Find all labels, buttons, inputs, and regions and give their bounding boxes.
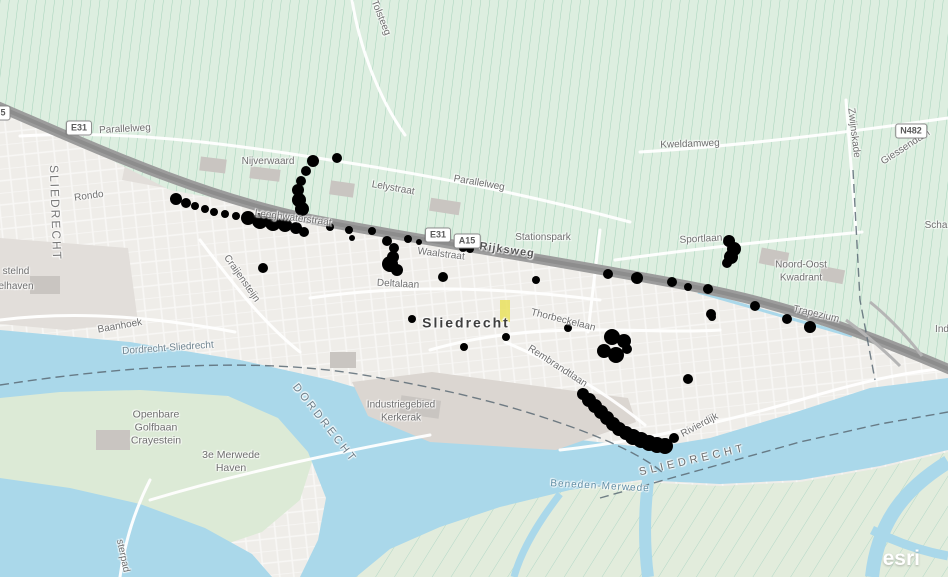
data-point[interactable] [622, 344, 632, 354]
data-point[interactable] [706, 309, 716, 319]
map-canvas[interactable]: ParallelwegTolsteegKweldamwegZwijnskadeG… [0, 0, 948, 577]
data-point[interactable] [299, 227, 309, 237]
data-point[interactable] [408, 315, 416, 323]
data-point[interactable] [326, 223, 334, 231]
data-point[interactable] [502, 333, 510, 341]
data-point[interactable] [368, 227, 376, 235]
data-point[interactable] [603, 269, 613, 279]
data-point[interactable] [301, 166, 311, 176]
esri-attribution[interactable]: esri [883, 547, 920, 571]
data-point[interactable] [608, 347, 624, 363]
data-point[interactable] [391, 264, 403, 276]
data-point[interactable] [722, 258, 732, 268]
data-point[interactable] [782, 314, 792, 324]
data-point[interactable] [667, 277, 677, 287]
data-point[interactable] [345, 226, 353, 234]
data-point[interactable] [332, 153, 342, 163]
basemap-svg [0, 0, 948, 577]
data-point[interactable] [703, 284, 713, 294]
island-creek-1 [645, 452, 652, 577]
data-point[interactable] [307, 155, 319, 167]
data-point[interactable] [210, 208, 218, 216]
data-point[interactable] [191, 202, 199, 210]
data-point[interactable] [631, 272, 643, 284]
data-point[interactable] [349, 235, 355, 241]
data-point[interactable] [466, 245, 474, 253]
data-point[interactable] [669, 433, 679, 443]
data-point[interactable] [232, 212, 240, 220]
data-point[interactable] [459, 244, 467, 252]
data-point[interactable] [201, 205, 209, 213]
data-point[interactable] [804, 321, 816, 333]
data-point[interactable] [278, 218, 292, 232]
data-point[interactable] [750, 301, 760, 311]
data-point[interactable] [221, 210, 229, 218]
data-point[interactable] [170, 193, 182, 205]
data-point[interactable] [684, 283, 692, 291]
data-point[interactable] [181, 198, 191, 208]
data-point[interactable] [258, 263, 268, 273]
data-point[interactable] [438, 272, 448, 282]
data-point[interactable] [460, 343, 468, 351]
data-point[interactable] [683, 374, 693, 384]
data-point[interactable] [564, 324, 572, 332]
data-point[interactable] [416, 239, 422, 245]
data-point[interactable] [532, 276, 540, 284]
data-point[interactable] [295, 202, 309, 216]
data-point[interactable] [404, 235, 412, 243]
